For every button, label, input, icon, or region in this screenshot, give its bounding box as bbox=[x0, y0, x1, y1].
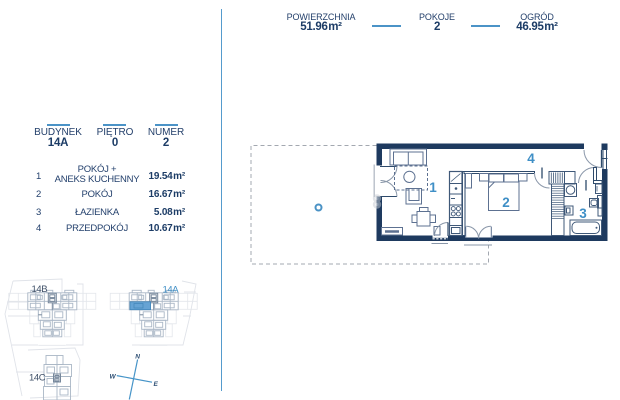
svg-text:W: W bbox=[110, 374, 117, 381]
svg-text:14C: 14C bbox=[29, 373, 46, 384]
svg-text:N: N bbox=[135, 354, 140, 361]
svg-text:1: 1 bbox=[429, 180, 437, 195]
svg-text:3: 3 bbox=[579, 206, 587, 221]
svg-text:14A: 14A bbox=[163, 285, 180, 296]
svg-text:14B: 14B bbox=[32, 284, 48, 295]
svg-text:2: 2 bbox=[502, 195, 510, 210]
svg-text:E: E bbox=[154, 381, 159, 388]
svg-text:4: 4 bbox=[527, 151, 535, 166]
